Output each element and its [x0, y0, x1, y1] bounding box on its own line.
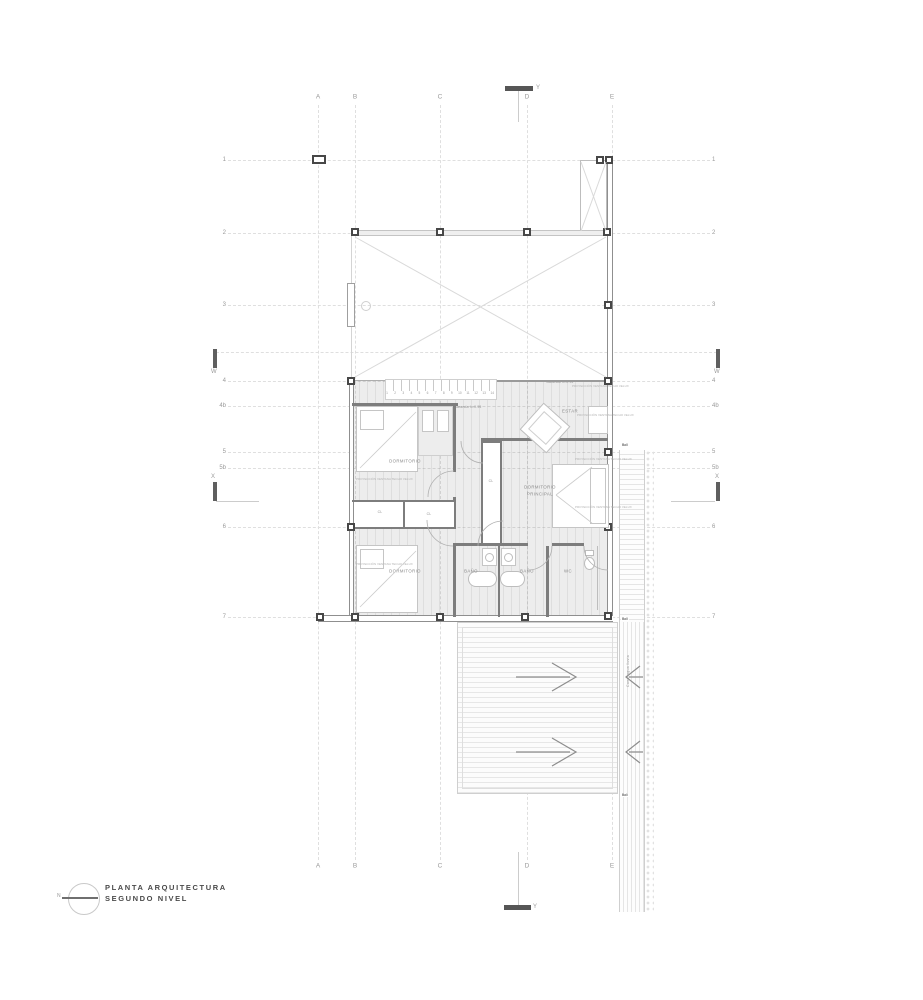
stair-number: 13 [480, 391, 488, 395]
grid-number-left-2: 2 [223, 230, 226, 236]
wc-screen-line [597, 546, 598, 610]
section-marker-y-top [505, 86, 533, 91]
downspout-label-mid: Ball [621, 617, 629, 621]
stair-shaft [580, 160, 607, 232]
grid-number-right-1: 1 [712, 157, 715, 163]
stair-number: 10 [456, 391, 464, 395]
stair-tread-numbers: 1 2 3 4 5 6 7 8 9 10 11 12 13 14 [383, 391, 496, 395]
pillow [360, 410, 384, 430]
grid-line-row-3 [228, 305, 710, 306]
grid-letter-bottom-a: A [316, 863, 320, 870]
column-marker [347, 523, 355, 531]
balcony-rail-line [497, 380, 608, 382]
section-label-x-right: X [715, 474, 719, 480]
wardrobe-door [422, 410, 434, 432]
grid-letter-top-a: A [316, 94, 320, 101]
column-marker [603, 228, 611, 236]
gravel-edge [645, 450, 654, 912]
room-label-cl-3: CL [489, 479, 494, 483]
grid-line-col-a [318, 105, 319, 860]
section-label-w-left: W [211, 369, 217, 375]
stair-number: 9 [448, 391, 456, 395]
annotation-proyeccion: PROYECCIÓN VENTANA TECHO VELUX [572, 384, 629, 388]
grid-number-left-3: 3 [223, 302, 226, 308]
column-marker [523, 228, 531, 236]
column-marker [596, 156, 604, 164]
wall-bath-top-1 [453, 543, 528, 546]
closet-left-area [354, 502, 403, 527]
column-marker [316, 613, 324, 621]
section-line-x-left [216, 501, 259, 502]
grid-line-row-w [216, 352, 717, 353]
grid-letter-top-b: B [353, 94, 357, 101]
grid-number-left-1: 1 [223, 157, 226, 163]
sink [504, 553, 513, 562]
wardrobe-door [437, 410, 449, 432]
vanity-bath1 [482, 548, 497, 566]
north-label: N [57, 893, 61, 899]
downspout-label-bottom: Ball [621, 793, 629, 797]
north-arrow-line [62, 897, 98, 899]
grid-number-left-6: 6 [223, 524, 226, 530]
section-line-y-bottom [518, 852, 519, 905]
floor-edge-line [352, 380, 385, 381]
grid-number-left-5: 5 [223, 449, 226, 455]
rain-channel-lower [619, 622, 645, 912]
sideboard-estar [588, 406, 608, 434]
section-label-x-left: X [211, 474, 215, 480]
grid-number-left-7: 7 [223, 614, 226, 620]
grid-number-right-3: 3 [712, 302, 715, 308]
fixture-circle [362, 302, 371, 311]
pillow [360, 549, 384, 569]
annotation-proyeccion: PROYECCIÓN VENTANA TECHO VELUX [577, 413, 634, 417]
stair-number: 3 [399, 391, 407, 395]
armchair-cushion [528, 411, 562, 445]
grid-number-right-4b: 4b [712, 403, 719, 409]
grid-number-right-4: 4 [712, 378, 715, 384]
section-label-y-top: Y [536, 85, 540, 91]
column-marker [605, 156, 613, 164]
plan-title-line2: SEGUNDO NIVEL [105, 894, 188, 903]
grid-letter-bottom-c: C [438, 863, 443, 870]
closet-column [481, 441, 502, 545]
wall-bottom-exterior [318, 615, 613, 622]
column-marker [436, 613, 444, 621]
stair-number: 12 [472, 391, 480, 395]
section-marker-w-left [213, 349, 217, 368]
grid-number-right-2: 2 [712, 230, 715, 236]
grid-letter-top-e: E [610, 94, 614, 101]
stair-number: 4 [407, 391, 415, 395]
section-marker-w-right [716, 349, 720, 368]
column-marker [351, 228, 359, 236]
section-marker-x-left [213, 482, 217, 501]
annotation-proyeccion: PROYECCIÓN VENTANA TECHO VELUX [356, 477, 413, 481]
beam-row-2 [352, 230, 610, 236]
plan-title-line1: PLANTA ARQUITECTURA [105, 883, 227, 892]
grid-number-right-7: 7 [712, 614, 715, 620]
wall-central-upper [453, 403, 456, 472]
grid-letter-bottom-d: D [525, 863, 530, 870]
grid-number-left-4: 4 [223, 378, 226, 384]
grid-number-right-5b: 5b [712, 465, 719, 471]
pillow [590, 468, 606, 524]
column-marker [604, 448, 612, 456]
stair-number: 1 [383, 391, 391, 395]
toilet-tank [585, 550, 594, 556]
column-marker [521, 613, 529, 621]
section-label-w-right: W [714, 369, 720, 375]
grid-number-left-5b: 5b [219, 465, 226, 471]
room-label-dormitorio-2: DORMITORIO [389, 569, 421, 574]
sink [485, 553, 494, 562]
section-label-y-bottom: Y [533, 904, 537, 910]
staircase [385, 379, 497, 400]
cross-brace-lines [355, 162, 606, 377]
north-arrow-circle [68, 883, 100, 915]
grid-letter-bottom-b: B [353, 863, 357, 870]
downspout-label-top: Ball [621, 443, 629, 447]
deck-inner-border [462, 627, 613, 789]
section-line-x-right [671, 501, 715, 502]
room-label-cl-1: CL [378, 510, 383, 514]
section-line-y-top [518, 91, 519, 122]
stair-number: 5 [415, 391, 423, 395]
column-marker [347, 377, 355, 385]
wall-bath-top-2 [552, 543, 584, 546]
grid-letter-top-c: C [438, 94, 443, 101]
stair-number: 14 [488, 391, 496, 395]
window-mullion [347, 283, 355, 327]
stair-number: 6 [423, 391, 431, 395]
stair-number: 2 [391, 391, 399, 395]
room-label-bano-1: BAÑO [464, 569, 478, 574]
room-label-bano-2: BAÑO [520, 569, 534, 574]
rain-channel-upper [619, 450, 645, 622]
baranda-label-stair: Baranda h=0.95 [454, 405, 481, 409]
annotation-proyeccion: PROYECCIÓN VENTANA TECHO VELUX [356, 562, 413, 566]
column-marker [604, 301, 612, 309]
grid-letter-top-d: D [525, 94, 530, 101]
room-label-estar: ESTAR [562, 409, 578, 414]
room-label-dormitorio-1: DORMITORIO [389, 459, 421, 464]
wall-bath-partition-2 [546, 546, 549, 617]
grid-letter-bottom-e: E [610, 863, 614, 870]
room-label-dormitorio-principal-2: PRINCIPAL [527, 492, 553, 497]
annotation-proyeccion: PROYECCIÓN VENTANA TECHO VELUX [575, 457, 632, 461]
grid-number-right-6: 6 [712, 524, 715, 530]
stair-number: 8 [440, 391, 448, 395]
room-label-wc: WC [564, 569, 572, 574]
stair-number: 11 [464, 391, 472, 395]
section-marker-x-right [716, 482, 720, 501]
rain-channel-label: Canal agua lluvia [626, 655, 630, 687]
grid-line-row-1 [228, 160, 710, 161]
wall-central-lower [453, 545, 456, 617]
room-label-dormitorio-principal-1: DORMITORIO [524, 485, 556, 490]
column-marker [351, 613, 359, 621]
annotation-proyeccion: PROYECCIÓN VENTANA TECHO VELUX [575, 505, 632, 509]
toilet-bowl [584, 557, 595, 570]
room-label-cl-2: CL [427, 512, 432, 516]
grid-number-right-5: 5 [712, 449, 715, 455]
floor-plan-canvas: A B C D E A B C D E 1 2 3 4 4b 5 5b 6 7 … [0, 0, 923, 1000]
column-marker [604, 612, 612, 620]
section-marker-y-bottom [504, 905, 531, 910]
column-marker [312, 155, 326, 164]
stair-number: 7 [432, 391, 440, 395]
column-marker [436, 228, 444, 236]
grid-number-left-4b: 4b [219, 403, 226, 409]
vanity-bath2 [501, 548, 516, 566]
